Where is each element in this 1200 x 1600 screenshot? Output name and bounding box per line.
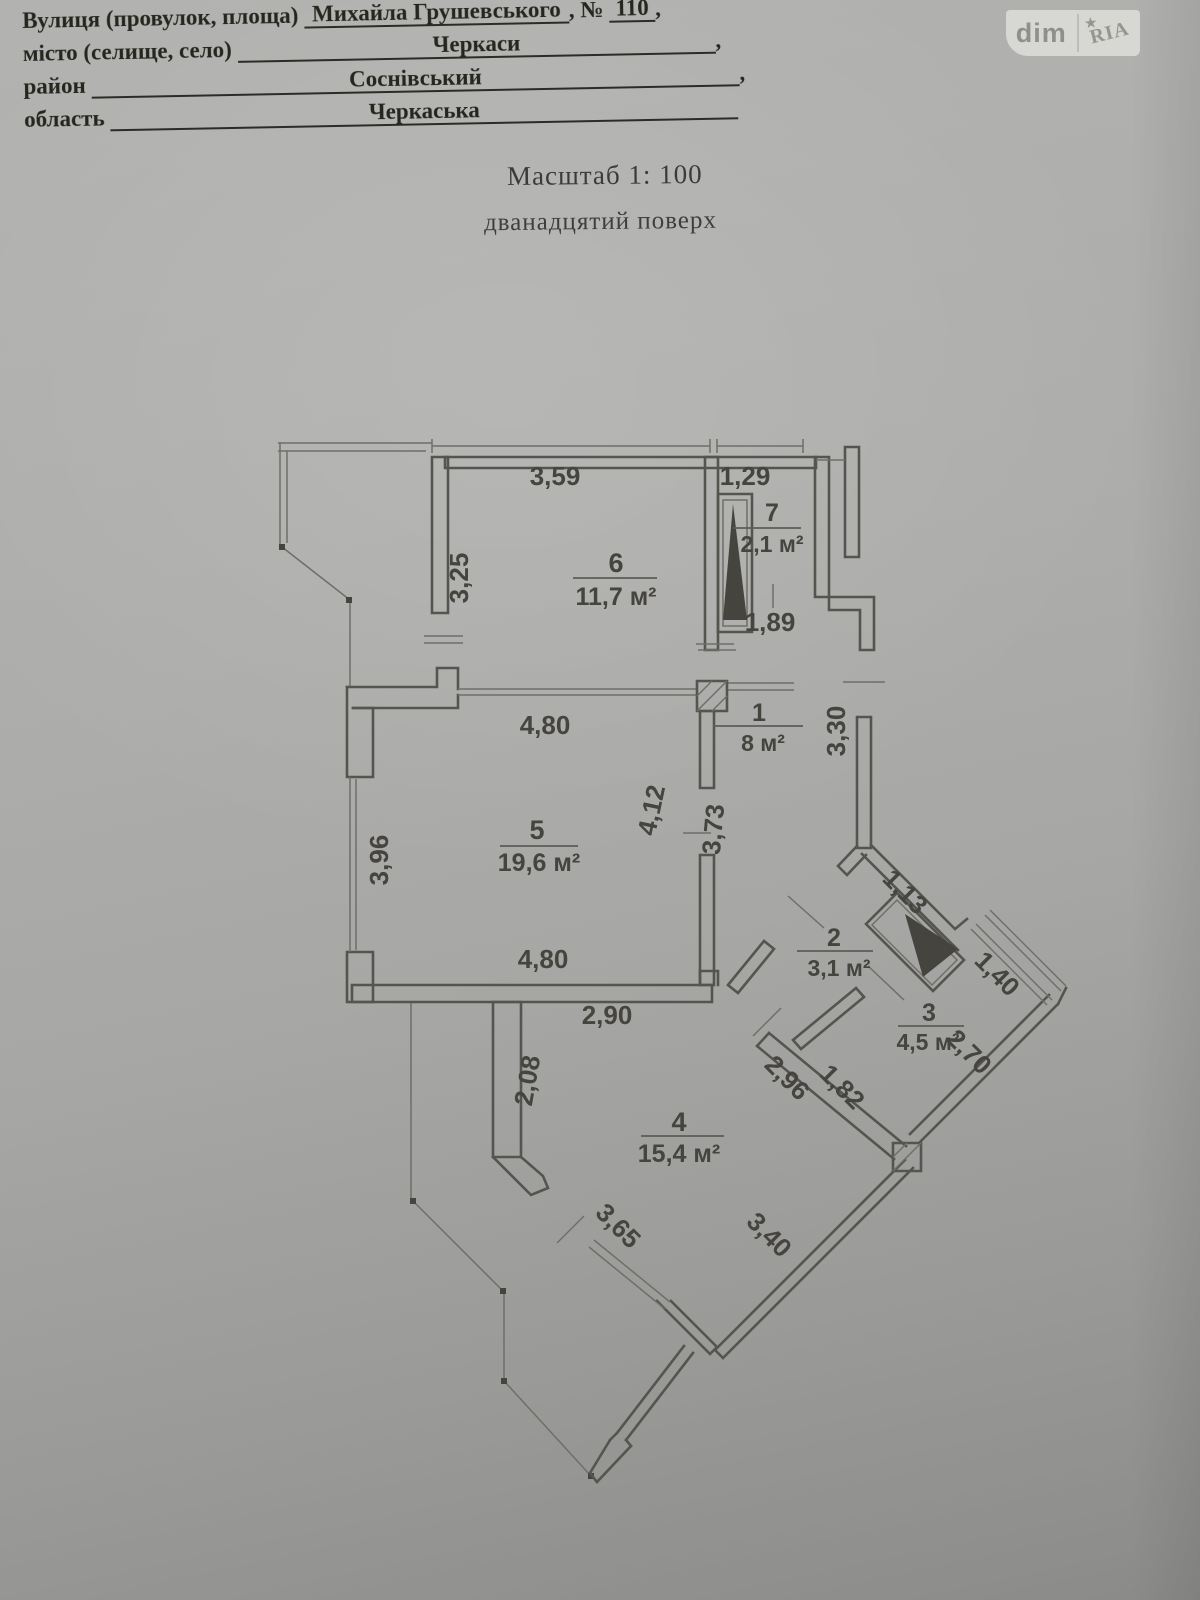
dim-3-96: 3,96 xyxy=(364,835,394,886)
room-7-number: 7 xyxy=(765,499,779,527)
dimension-lines xyxy=(432,439,904,1243)
walls-room2-partition xyxy=(793,988,864,1049)
dim-4-80-top: 4,80 xyxy=(520,710,571,740)
dim-2-96: 2,96 xyxy=(759,1049,816,1106)
dim-4-12: 4,12 xyxy=(631,782,671,838)
column-marker-2 xyxy=(893,1143,921,1171)
dim-1-40: 1,40 xyxy=(969,945,1026,1002)
dim-3-25: 3,25 xyxy=(444,553,474,604)
room-2-number: 2 xyxy=(827,924,841,952)
walls-upper-block xyxy=(432,447,874,650)
room-6-area: 11,7 м² xyxy=(575,583,656,611)
dim-3-40: 3,40 xyxy=(741,1206,798,1263)
dim-3-73: 3,73 xyxy=(696,803,730,856)
dim-1-82: 1,82 xyxy=(814,1058,871,1115)
dim-2-08: 2,08 xyxy=(508,1053,546,1108)
room-4-area: 15,4 м² xyxy=(638,1140,720,1168)
room-5-number: 5 xyxy=(529,815,544,845)
dim-3-30: 3,30 xyxy=(821,706,851,757)
dim-4-80-bottom: 4,80 xyxy=(518,944,569,974)
room-3-number: 3 xyxy=(922,999,936,1027)
plan-labels: 3,59 1,29 3,25 6 11,7 м² 7 2,1 м² 1,89 4… xyxy=(364,461,1026,1263)
room-7-area: 2,1 м² xyxy=(740,531,803,557)
dim-3-65: 3,65 xyxy=(590,1197,647,1254)
room-6-number: 6 xyxy=(608,548,623,578)
window-marks-upper xyxy=(424,460,845,690)
dim-1-29: 1,29 xyxy=(720,461,771,491)
floor-plan: 3,59 1,29 3,25 6 11,7 м² 7 2,1 м² 1,89 4… xyxy=(0,0,1200,1600)
dim-2-90: 2,90 xyxy=(582,1000,633,1030)
room-5-area: 19,6 м² xyxy=(498,849,580,877)
column-marker-1 xyxy=(697,681,727,711)
room-1-area: 8 м² xyxy=(741,730,785,756)
dim-1-89: 1,89 xyxy=(745,607,796,637)
room-4-number: 4 xyxy=(671,1107,686,1137)
room-2-area: 3,1 м² xyxy=(807,955,870,981)
room-1-number: 1 xyxy=(752,699,766,727)
page: { "header": { "line1_label": "Вулиця (пр… xyxy=(0,0,1200,1600)
dim-3-59: 3,59 xyxy=(530,461,581,491)
vent-shaft-1-triangle xyxy=(723,504,747,620)
